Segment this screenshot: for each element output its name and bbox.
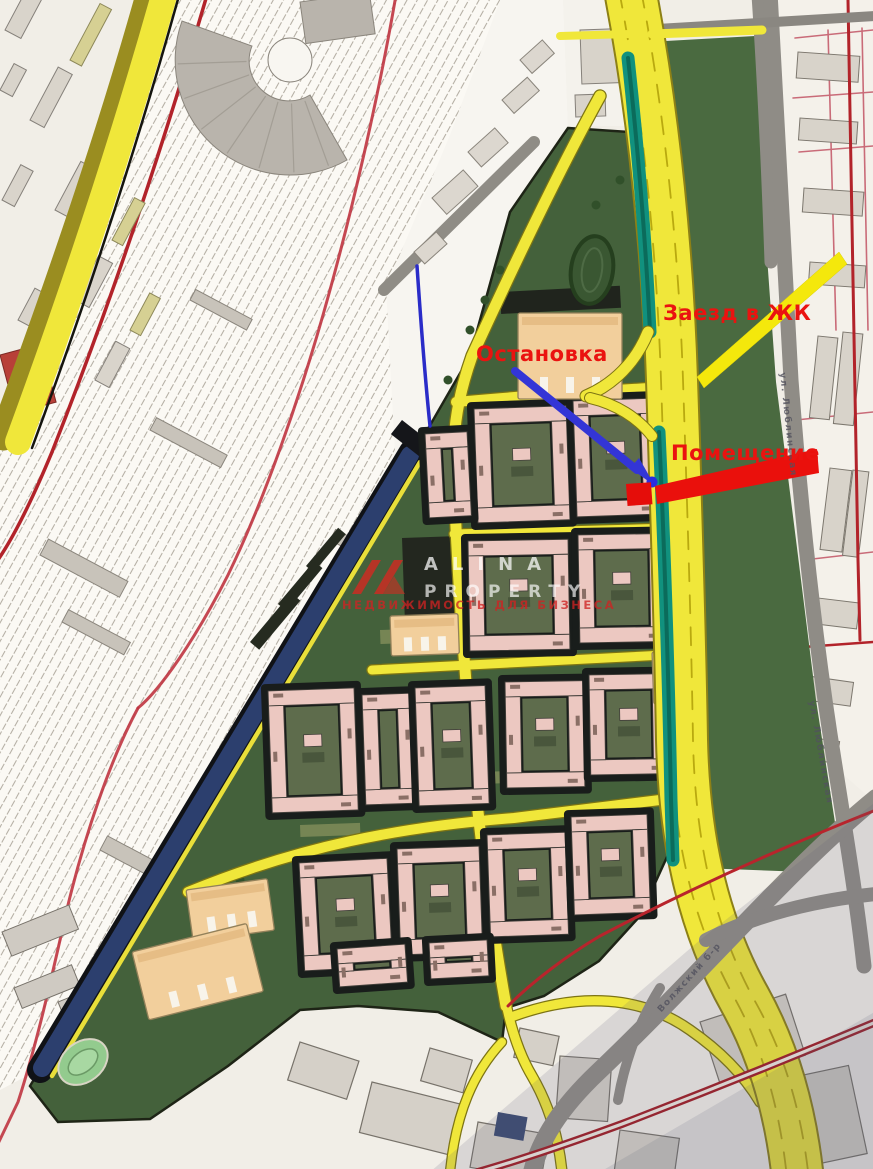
site-plan-map: ALINA PROPERTY НЕДВИЖИМОСТЬ ДЛЯ БИЗНЕСА … xyxy=(0,0,873,1169)
watermark-tagline: НЕДВИЖИМОСТЬ ДЛЯ БИЗНЕСА xyxy=(342,598,616,612)
residential-block xyxy=(330,937,415,995)
watermark-logo-icon xyxy=(350,550,414,596)
label-premises: Помещение xyxy=(671,441,820,465)
watermark: ALINA PROPERTY НЕДВИЖИМОСТЬ ДЛЯ БИЗНЕСА xyxy=(338,546,608,626)
residential-block xyxy=(418,424,479,525)
label-bus-stop: Остановка xyxy=(476,342,608,366)
watermark-brand-line1: ALINA xyxy=(424,554,555,575)
residential-block xyxy=(564,807,658,922)
residential-block xyxy=(408,678,497,813)
residential-block xyxy=(467,399,577,531)
residential-block xyxy=(261,681,366,820)
residential-block xyxy=(480,825,576,944)
label-complex-entrance: Заезд в ЖК xyxy=(663,301,811,325)
residential-block xyxy=(498,674,592,796)
city-building xyxy=(802,188,864,216)
residential-block xyxy=(422,933,497,987)
premises-marker xyxy=(626,482,652,506)
